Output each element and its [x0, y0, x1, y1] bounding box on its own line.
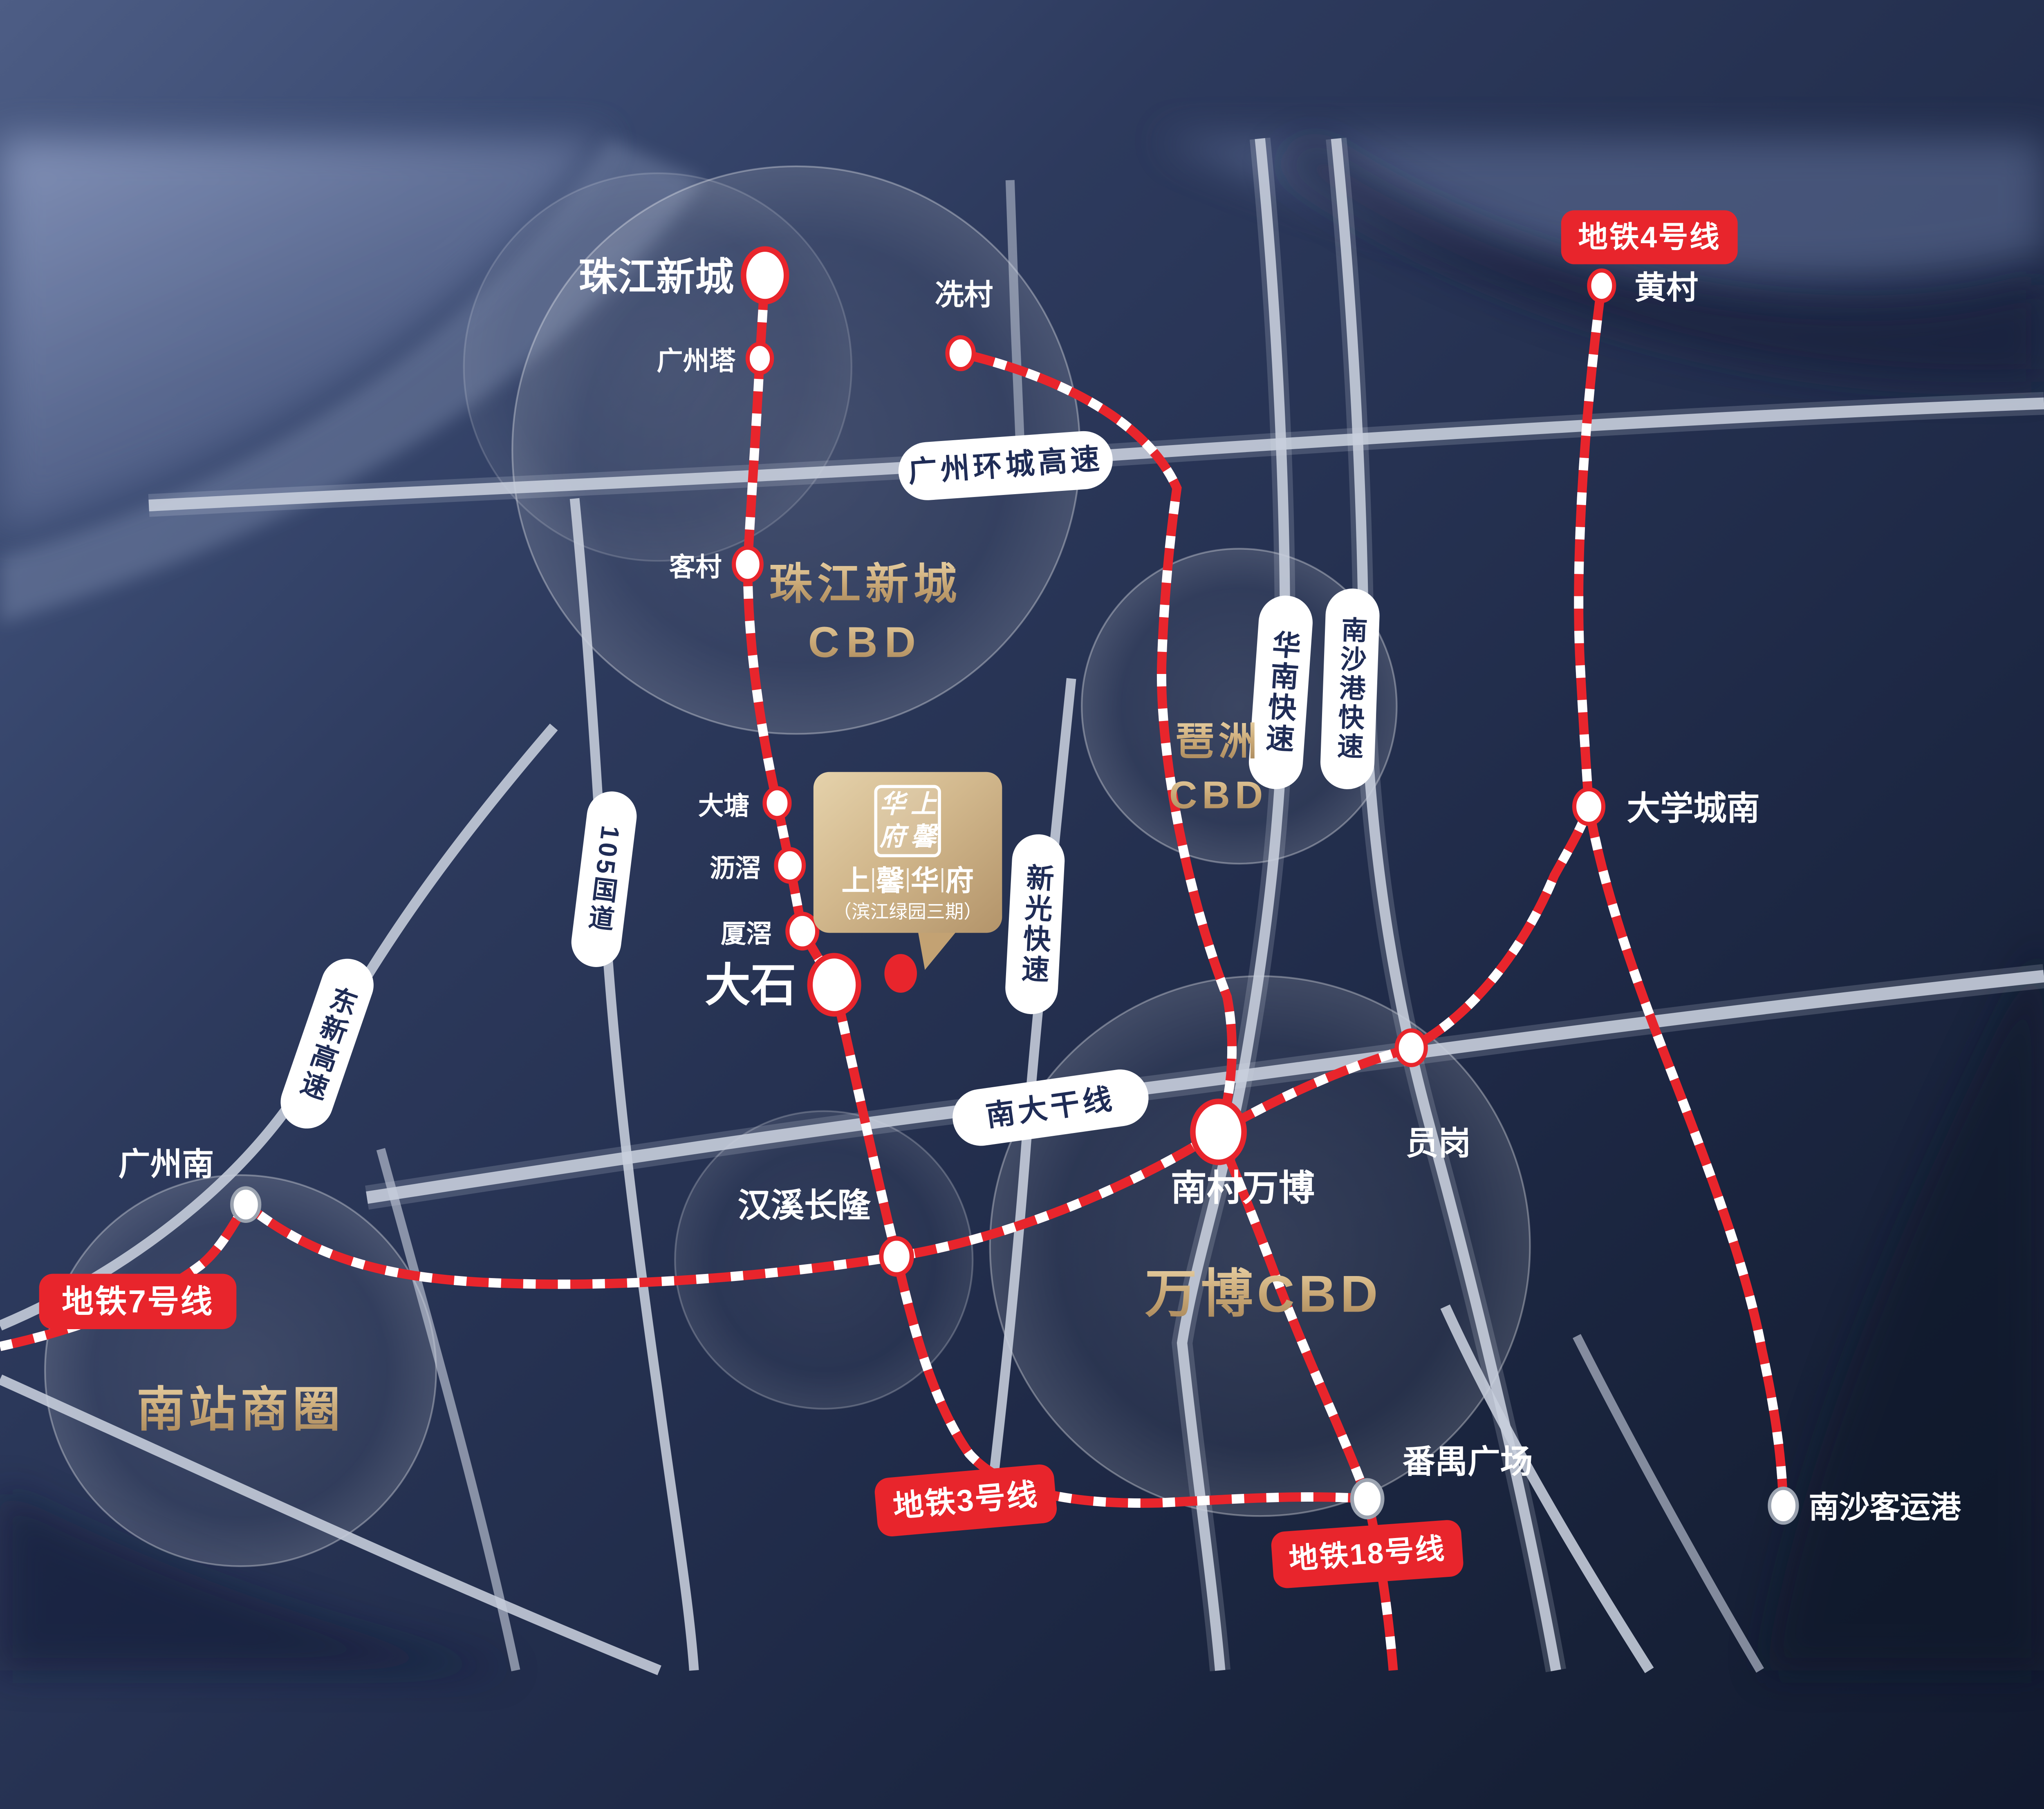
- road-pill-guodao105: 105国道: [569, 788, 640, 969]
- cbd-label-zhujiang-line2: CBD: [808, 618, 923, 667]
- station-yuangang: [1397, 1030, 1426, 1065]
- road-pill-dongxin: 东新高速: [273, 952, 381, 1135]
- station-datang: [764, 788, 789, 818]
- station-xiancun: [948, 337, 974, 369]
- project-name-char: 府: [945, 864, 973, 896]
- name-divider: [872, 868, 874, 892]
- badge-label-line4: 地铁4号线: [1578, 221, 1721, 254]
- station-daxuecheng-nan: [1574, 789, 1603, 824]
- badge-line3: 地铁3号线: [874, 1463, 1058, 1538]
- badge-line7: 地铁7号线: [39, 1274, 237, 1329]
- station-label-huangcun: 黄村: [1634, 269, 1698, 305]
- badge-line18: 地铁18号线: [1270, 1519, 1464, 1589]
- station-label-kecun: 客村: [669, 552, 722, 582]
- station-guangzhou-ta: [748, 344, 772, 373]
- map-poster: 广州环城高速 华南快速 南沙港快速 105国道 东新高速 新光快速 南大干线 珠…: [0, 0, 2044, 1809]
- station-hanxi-changlong: [881, 1238, 912, 1274]
- station-lijiao: [776, 849, 804, 882]
- station-label-hanxi-changlong: 汉溪长隆: [737, 1187, 871, 1224]
- name-divider: [907, 868, 908, 892]
- station-label-yuangang: 员岗: [1406, 1125, 1471, 1161]
- station-label-daxuecheng-nan: 大学城南: [1627, 790, 1760, 827]
- badge-label-line7: 地铁7号线: [62, 1283, 214, 1319]
- station-label-xiajiao: 厦滘: [721, 920, 772, 948]
- station-huangcun: [1589, 271, 1614, 301]
- project-name-row: 上 馨 华 府: [841, 864, 973, 896]
- seal-char-3: 华: [880, 789, 908, 819]
- glow-nanzhan: [45, 1175, 436, 1566]
- station-guangzhou-nan: [232, 1188, 260, 1221]
- station-label-guangzhou-nan: 广州南: [119, 1146, 214, 1182]
- road-panyu-east-2: [1577, 1336, 1760, 1670]
- seal-char-4: 府: [880, 821, 910, 851]
- cbd-label-nanzhan: 南站商圈: [137, 1383, 344, 1436]
- cbd-label-pazhou-line1: 琶洲: [1176, 720, 1262, 763]
- project-name-char: 华: [911, 864, 939, 896]
- vignette-bottom-right: [1765, 935, 2044, 1670]
- road-pill-nanshagang: 南沙港快速: [1320, 588, 1381, 790]
- project-name-char: 馨: [876, 864, 905, 896]
- cbd-label-wanbo: 万博CBD: [1145, 1265, 1382, 1323]
- station-label-dashi: 大石: [705, 960, 796, 1011]
- name-divider: [941, 868, 943, 892]
- seal-char-2: 馨: [911, 821, 940, 851]
- station-label-datang: 大塘: [698, 792, 749, 820]
- station-label-lijiao: 沥滘: [710, 854, 761, 882]
- road-label-nanshagang: 南沙港快速: [1333, 616, 1368, 762]
- station-label-zhujiang-xincheng: 珠江新城: [579, 255, 734, 299]
- cbd-label-zhujiang-line1: 珠江新城: [769, 560, 961, 608]
- station-zhujiang-xincheng: [744, 249, 787, 302]
- seal-char-1: 上: [911, 789, 937, 819]
- badge-line4: 地铁4号线: [1561, 210, 1738, 264]
- transit-map-canvas: 广州环城高速 华南快速 南沙港快速 105国道 东新高速 新光快速 南大干线 珠…: [0, 0, 2044, 1809]
- station-nancun-wanbo: [1193, 1102, 1244, 1162]
- station-kecun: [734, 548, 762, 581]
- station-nansha-keyungang: [1770, 1488, 1797, 1523]
- project-location-dot: [884, 954, 917, 993]
- cbd-label-pazhou-line2: CBD: [1169, 774, 1268, 817]
- metro-line-4-path: [1579, 286, 1784, 1506]
- callout-tail: [917, 928, 959, 970]
- station-dashi: [810, 956, 858, 1014]
- station-label-xiancun: 冼村: [935, 279, 993, 311]
- station-label-nansha-keyungang: 南沙客运港: [1809, 1490, 1961, 1524]
- station-label-guangzhou-ta: 广州塔: [657, 346, 736, 376]
- station-panyu-guangchang: [1352, 1480, 1383, 1517]
- station-xiajiao: [787, 914, 817, 949]
- station-label-panyu-guangchang: 番禺广场: [1403, 1443, 1533, 1480]
- project-subtitle: （滨江绿园三期）: [833, 901, 982, 922]
- project-name-char: 上: [841, 864, 870, 896]
- road-pill-xinguang: 新光快速: [1004, 833, 1066, 1015]
- project-logo-seal: 上 馨 华 府: [876, 786, 940, 855]
- station-label-nancun-wanbo: 南村万博: [1171, 1168, 1315, 1208]
